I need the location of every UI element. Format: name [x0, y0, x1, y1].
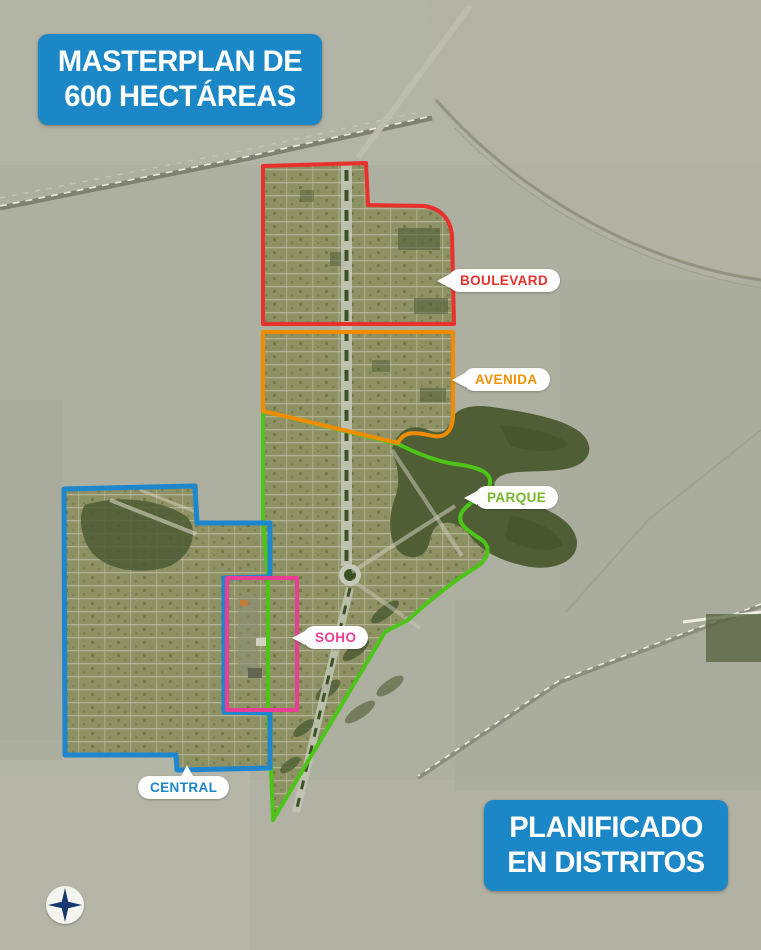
footer-line2: EN DISTRITOS [501, 845, 711, 880]
title-badge: MASTERPLAN DE 600 HECTÁREAS [38, 34, 322, 125]
district-label-central: CENTRAL [138, 765, 229, 799]
district-label-parque: PARQUE [464, 486, 558, 509]
district-label-text: AVENIDA [463, 368, 550, 391]
district-label-soho: SOHO [292, 626, 368, 649]
district-label-text: SOHO [303, 626, 368, 649]
title-line2: 600 HECTÁREAS [56, 79, 304, 114]
masterplan-map: MASTERPLAN DE 600 HECTÁREAS PLANIFICADO … [0, 0, 761, 950]
district-label-text: BOULEVARD [448, 269, 560, 292]
title-line1: MASTERPLAN DE [56, 44, 304, 79]
district-label-avenida: AVENIDA [452, 368, 550, 391]
footer-line1: PLANIFICADO [501, 810, 711, 845]
district-label-text: CENTRAL [138, 776, 229, 799]
district-label-boulevard: BOULEVARD [437, 269, 560, 292]
compass-rose-icon [46, 886, 84, 924]
district-label-text: PARQUE [475, 486, 558, 509]
footer-badge: PLANIFICADO EN DISTRITOS [484, 800, 728, 891]
